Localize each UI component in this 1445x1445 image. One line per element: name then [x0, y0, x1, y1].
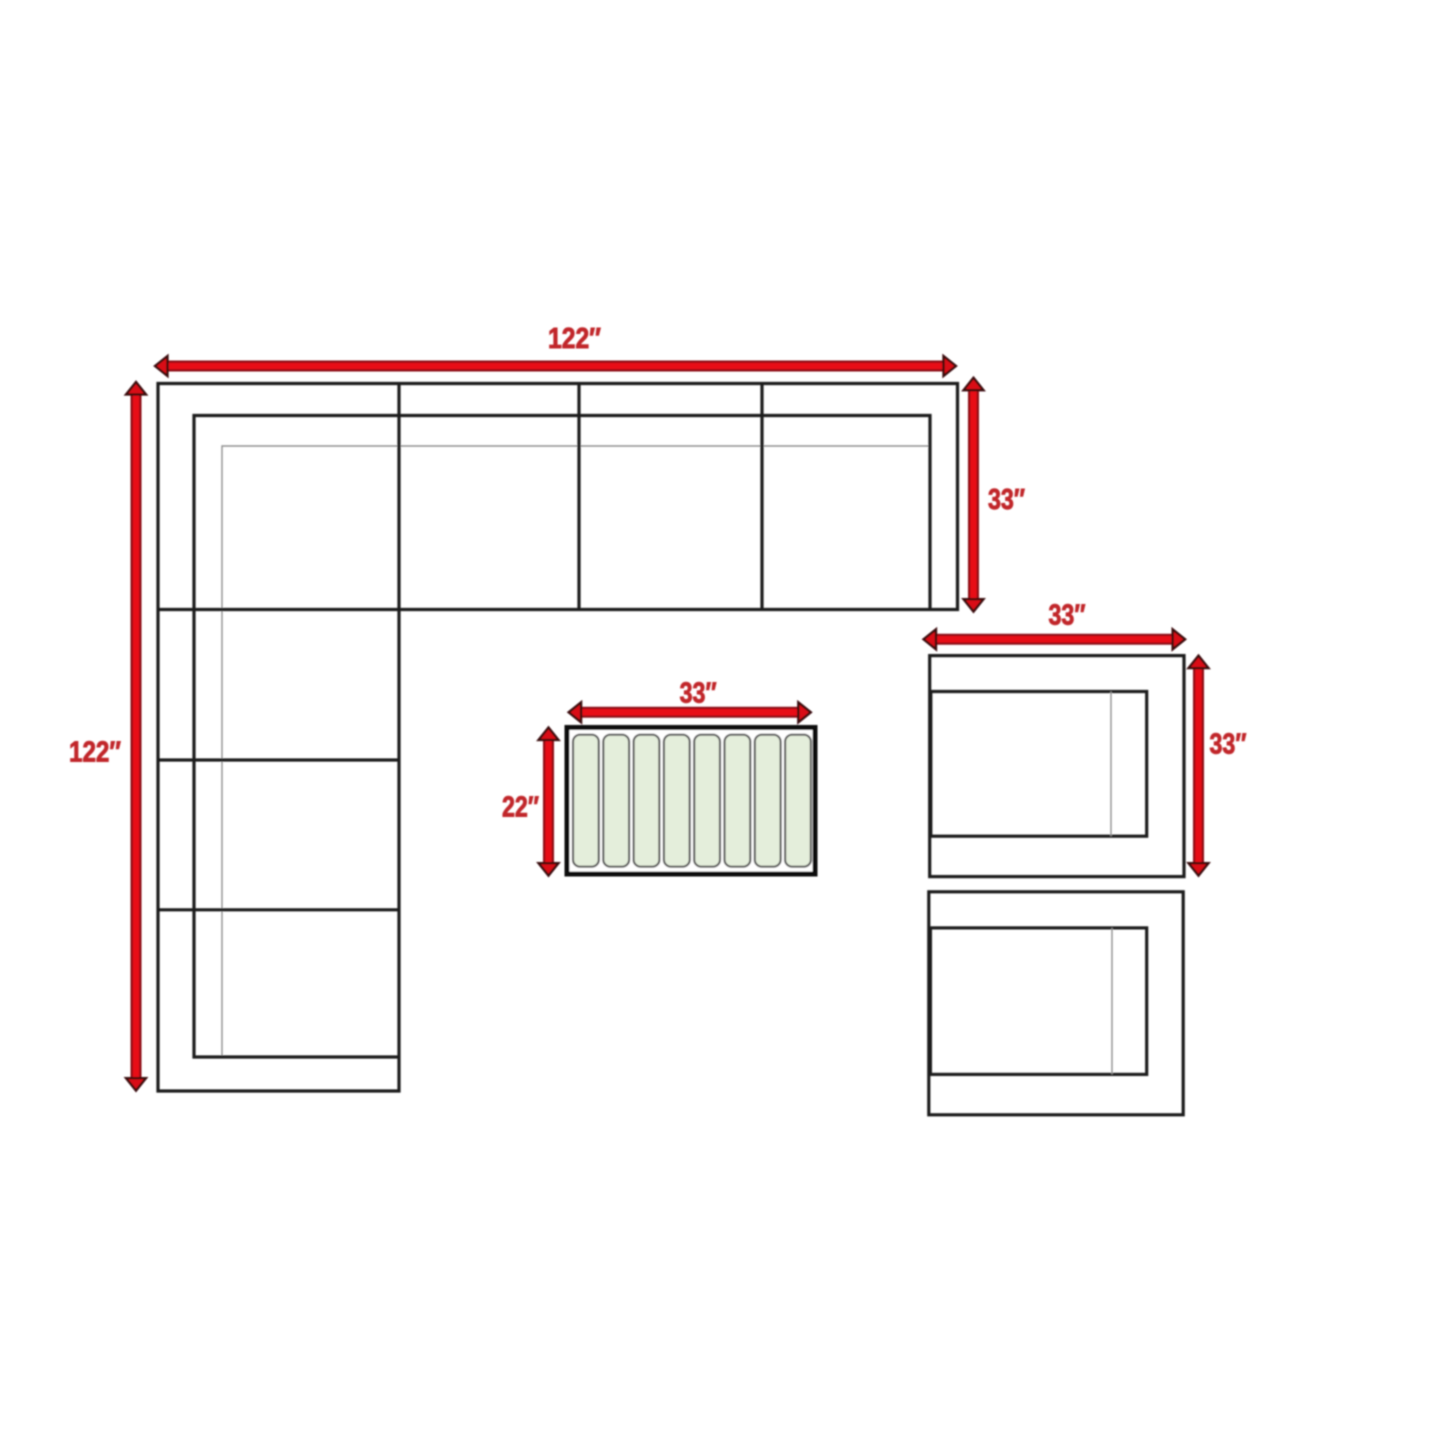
svg-text:33″: 33″: [680, 678, 717, 710]
svg-text:22″: 22″: [502, 792, 539, 824]
svg-text:122″: 122″: [548, 323, 601, 355]
svg-text:33″: 33″: [1210, 729, 1247, 761]
svg-text:33″: 33″: [988, 484, 1025, 516]
svg-text:33″: 33″: [1049, 600, 1086, 632]
svg-text:122″: 122″: [69, 737, 121, 769]
